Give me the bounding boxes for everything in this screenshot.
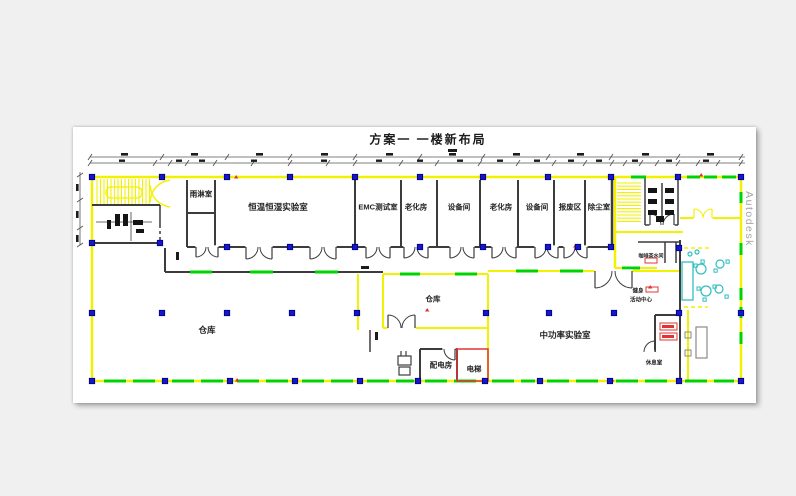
column-marker bbox=[611, 310, 616, 315]
room-label-warehouse-small: 仓库 bbox=[426, 295, 441, 303]
room-label-rest-room: 休息室 bbox=[646, 361, 663, 367]
room-label-warehouse-large: 仓库 bbox=[198, 326, 215, 335]
column-marker bbox=[162, 378, 167, 383]
column-marker bbox=[480, 244, 485, 249]
column-marker bbox=[227, 378, 232, 383]
column-marker bbox=[608, 174, 613, 179]
column-marker bbox=[483, 310, 488, 315]
column-marker bbox=[89, 240, 94, 245]
table-circle bbox=[688, 252, 692, 256]
column-marker bbox=[417, 174, 422, 179]
column-marker bbox=[575, 244, 580, 249]
table-circle bbox=[696, 264, 706, 274]
column-marker bbox=[159, 174, 164, 179]
room-label-dust-removal-room: 除尘室 bbox=[588, 203, 611, 211]
column-marker bbox=[480, 174, 485, 179]
table-circle bbox=[695, 250, 699, 254]
furniture-rect bbox=[399, 367, 410, 375]
column-marker bbox=[415, 378, 420, 383]
room-label-fitness-center-line2: 活动中心 bbox=[630, 298, 652, 304]
room-label-equipment-room-1: 设备间 bbox=[448, 203, 471, 211]
column-marker bbox=[157, 240, 162, 245]
column-marker bbox=[89, 174, 94, 179]
column-marker bbox=[738, 174, 743, 179]
room-label-power-distribution-room: 配电房 bbox=[430, 361, 453, 369]
stairs bbox=[97, 179, 641, 221]
column-marker bbox=[224, 174, 229, 179]
room-label-equipment-room-2: 设备间 bbox=[526, 203, 549, 211]
column-marker bbox=[159, 310, 164, 315]
workspace-background: 方案一 一楼新布局 Autodesk 雨淋室恒温恒湿实验室EMC测试室老化房设备… bbox=[0, 0, 796, 496]
room-label-medium-power-lab: 中功率实验室 bbox=[539, 331, 590, 340]
furniture-rect bbox=[646, 287, 658, 292]
column-marker bbox=[676, 378, 681, 383]
column-marker bbox=[289, 310, 294, 315]
autodesk-watermark-text: Autodesk bbox=[743, 191, 755, 247]
room-label-fitness-center-line1: 健身 bbox=[632, 289, 643, 295]
table-circle bbox=[701, 286, 711, 296]
column-marker bbox=[482, 378, 487, 383]
fire-marker-icon bbox=[699, 173, 703, 177]
column-marker bbox=[352, 244, 357, 249]
column-marker bbox=[287, 244, 292, 249]
column-marker bbox=[352, 174, 357, 179]
column-marker bbox=[675, 174, 680, 179]
door-arcs-extra bbox=[150, 180, 170, 207]
column-marker bbox=[287, 174, 292, 179]
column-marker bbox=[545, 174, 550, 179]
column-marker bbox=[738, 378, 743, 383]
column-marker bbox=[546, 310, 551, 315]
furniture-rect bbox=[696, 327, 707, 358]
column-marker bbox=[676, 310, 681, 315]
room-label-aging-room-1: 老化房 bbox=[405, 203, 428, 211]
column-marker bbox=[608, 244, 613, 249]
column-marker bbox=[738, 310, 743, 315]
fire-marker-icon bbox=[425, 308, 429, 312]
column-marker bbox=[89, 310, 94, 315]
room-label-emc-test-room: EMC测试室 bbox=[358, 203, 397, 211]
column-marker bbox=[224, 310, 229, 315]
column-marker bbox=[545, 244, 550, 249]
column-marker bbox=[676, 245, 681, 250]
column-marker bbox=[357, 378, 362, 383]
column-marker bbox=[224, 244, 229, 249]
furniture-rect bbox=[682, 262, 693, 300]
column-marker bbox=[607, 378, 612, 383]
column-marker bbox=[89, 378, 94, 383]
table-circle bbox=[716, 260, 724, 268]
column-marker bbox=[292, 378, 297, 383]
table-circle bbox=[715, 285, 723, 293]
room-label-constant-temp-humidity-lab: 恒温恒湿实验室 bbox=[248, 203, 308, 212]
room-label-scrap-area: 报废区 bbox=[559, 203, 582, 211]
drawing-title: 方案一 一楼新布局 bbox=[369, 131, 486, 148]
room-label-aging-room-2: 老化房 bbox=[490, 203, 513, 211]
column-marker bbox=[537, 378, 542, 383]
room-label-rain-room: 雨淋室 bbox=[190, 190, 213, 198]
room-label-elevator: 电梯 bbox=[467, 365, 482, 373]
column-marker bbox=[417, 244, 422, 249]
furniture-rect bbox=[398, 356, 411, 365]
drawing-canvas: 方案一 一楼新布局 Autodesk 雨淋室恒温恒湿实验室EMC测试室老化房设备… bbox=[73, 127, 756, 403]
room-label-coffee-tea-room: 咖啡茶水间 bbox=[638, 255, 663, 260]
column-marker bbox=[354, 310, 359, 315]
